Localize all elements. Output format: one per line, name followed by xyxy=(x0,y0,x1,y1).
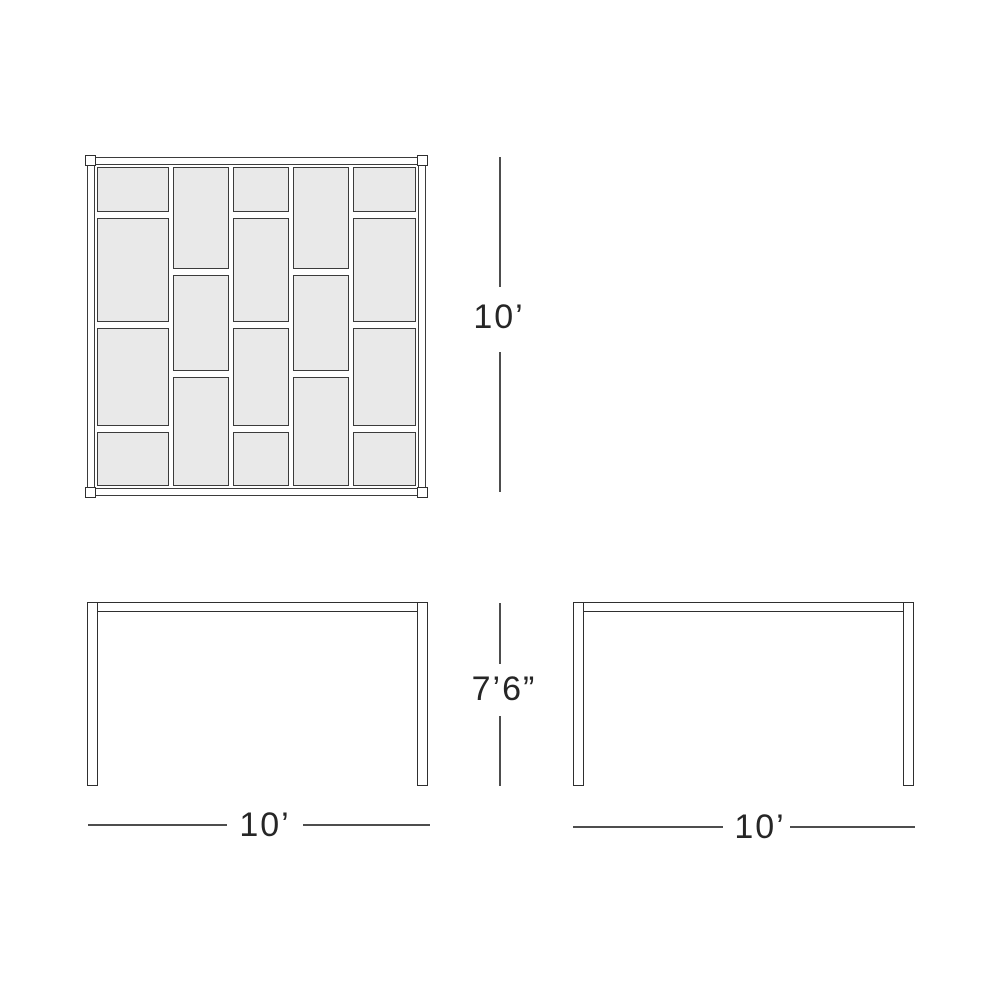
plank xyxy=(293,167,348,269)
plank xyxy=(233,432,289,486)
plank xyxy=(173,275,229,370)
plank xyxy=(293,275,348,370)
plank xyxy=(173,167,229,269)
elevation-height-dim-line-lower xyxy=(499,716,501,786)
side-right-leg xyxy=(903,602,914,786)
front-width-dim-line-right xyxy=(303,824,430,826)
plank xyxy=(293,377,348,486)
plank-column xyxy=(233,167,289,486)
plan-height-dim-line-upper xyxy=(499,157,501,287)
plank xyxy=(353,167,416,212)
front-right-leg xyxy=(417,602,428,786)
plan-height-dim-label: 10’ xyxy=(444,300,554,334)
elevation-height-dim-label: 7’6” xyxy=(449,672,559,706)
corner-post-bottom-left xyxy=(85,487,96,498)
plank xyxy=(97,328,169,425)
plan-view xyxy=(85,155,428,498)
plank xyxy=(97,218,169,322)
plank xyxy=(353,432,416,486)
plank xyxy=(233,218,289,322)
front-left-leg xyxy=(87,602,98,786)
plank xyxy=(353,218,416,322)
plank-column xyxy=(97,167,169,486)
corner-post-top-right xyxy=(417,155,428,166)
elevation-height-dim-line-upper xyxy=(499,603,501,664)
plank-column xyxy=(293,167,348,486)
plank xyxy=(233,328,289,425)
plank-grid xyxy=(97,167,416,486)
plank-column xyxy=(173,167,229,486)
side-elevation-view xyxy=(573,602,914,786)
drawing-canvas: 10’ 7’6” 10’ 10’ xyxy=(0,0,1000,1000)
plan-height-dim-line-lower xyxy=(499,352,501,492)
plank xyxy=(173,377,229,486)
side-width-dim-line-left xyxy=(573,826,723,828)
plank xyxy=(353,328,416,425)
plank xyxy=(97,167,169,212)
side-width-dim-line-right xyxy=(790,826,915,828)
plank xyxy=(97,432,169,486)
corner-post-bottom-right xyxy=(417,487,428,498)
plank-column xyxy=(353,167,416,486)
plank xyxy=(233,167,289,212)
side-left-leg xyxy=(573,602,584,786)
side-top-beam xyxy=(573,602,914,612)
front-top-beam xyxy=(87,602,428,612)
front-width-dim-line-left xyxy=(88,824,227,826)
front-elevation-view xyxy=(87,602,428,786)
corner-post-top-left xyxy=(85,155,96,166)
